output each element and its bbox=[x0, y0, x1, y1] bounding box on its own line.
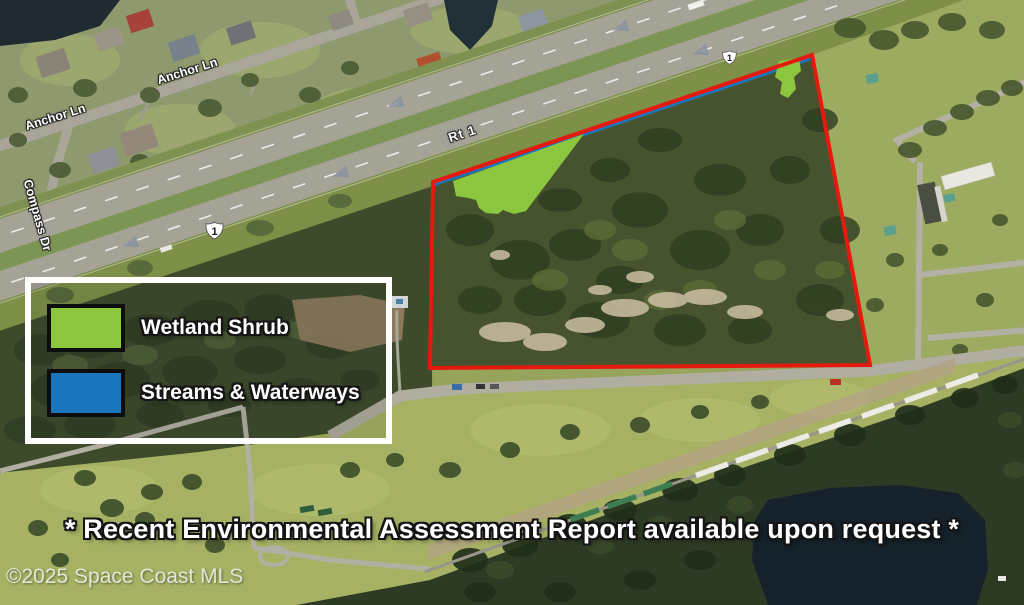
map-legend: Wetland Shrub Streams & Waterways bbox=[25, 277, 392, 444]
assessment-note: * Recent Environmental Assessment Report… bbox=[0, 514, 1024, 545]
legend-label-streams: Streams & Waterways bbox=[141, 381, 360, 405]
attribution-text: ©2025 Space Coast MLS bbox=[6, 565, 243, 589]
svg-text:1: 1 bbox=[211, 226, 218, 238]
streams-swatch bbox=[47, 369, 125, 417]
aerial-map: Rt 1 Anchor Ln Anchor Ln Compass Dr 1 1 … bbox=[0, 0, 1024, 605]
legend-label-wetland: Wetland Shrub bbox=[141, 316, 289, 340]
wetland-swatch bbox=[47, 304, 125, 352]
svg-text:1: 1 bbox=[727, 53, 732, 63]
legend-item-wetland: Wetland Shrub bbox=[47, 304, 370, 352]
legend-item-streams: Streams & Waterways bbox=[47, 369, 370, 417]
